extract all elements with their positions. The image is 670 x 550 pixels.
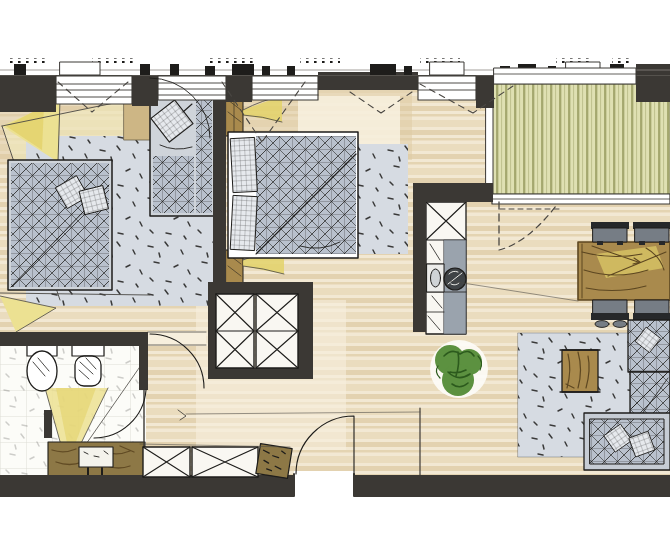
- pillow-bottom: [231, 195, 258, 250]
- window: [418, 76, 476, 100]
- dimension-ticks: [8, 58, 634, 63]
- wall-hung-toilet: [72, 344, 104, 386]
- floor-plan-drawing: [0, 0, 670, 550]
- balcony: [486, 84, 670, 209]
- sink: [79, 447, 113, 467]
- wall-bathroom-right: [139, 332, 148, 390]
- kitchen-cabinet-run: [426, 202, 466, 334]
- wall-closet-right: [298, 282, 313, 379]
- toilet: [27, 344, 57, 391]
- wall-closet-left: [208, 282, 216, 379]
- pillow-top: [231, 137, 258, 192]
- single-bed: [150, 96, 214, 216]
- dining-table: [578, 242, 670, 300]
- double-bed-left: [8, 160, 112, 290]
- window: [252, 76, 318, 100]
- wall-seg: [226, 76, 252, 102]
- wall-seg: [476, 76, 494, 108]
- double-bed-pillow-2: [79, 185, 108, 214]
- balcony-rail-band: [494, 68, 636, 84]
- wall-closet-bottom: [208, 368, 313, 379]
- wall-kitchen-top: [413, 183, 493, 202]
- wall-top-middle: [318, 72, 418, 90]
- wall-kitchen-left: [413, 202, 426, 332]
- x-wardrobe: [256, 294, 298, 368]
- chaise-sofa: [584, 413, 670, 470]
- room-bathroom: [0, 344, 146, 483]
- x-wardrobe-bottom: [143, 447, 258, 477]
- floor-plan-page: [0, 0, 670, 550]
- wall-shower-stub: [44, 410, 52, 438]
- wall-top-left: [0, 76, 56, 112]
- bedroom-middle-rug-speckles: [356, 144, 408, 254]
- wall-seg: [132, 76, 158, 106]
- kitchen-sink-bowl: [431, 269, 441, 287]
- plant: [430, 340, 488, 398]
- window: [158, 76, 226, 100]
- wall-closet-top: [208, 282, 313, 295]
- room-bedroom-left: [0, 94, 216, 332]
- chair: [633, 222, 670, 245]
- wall-bathroom-top: [0, 332, 148, 346]
- coffee-table: [560, 350, 600, 392]
- shoe-bench: [256, 444, 292, 479]
- double-bed-middle: [228, 132, 358, 258]
- door-opening-bedroom: [148, 331, 206, 346]
- wall-bedroom-divider: [213, 84, 226, 294]
- entry-door-opening: [294, 471, 354, 499]
- chair: [591, 222, 629, 245]
- x-wardrobe: [216, 294, 254, 368]
